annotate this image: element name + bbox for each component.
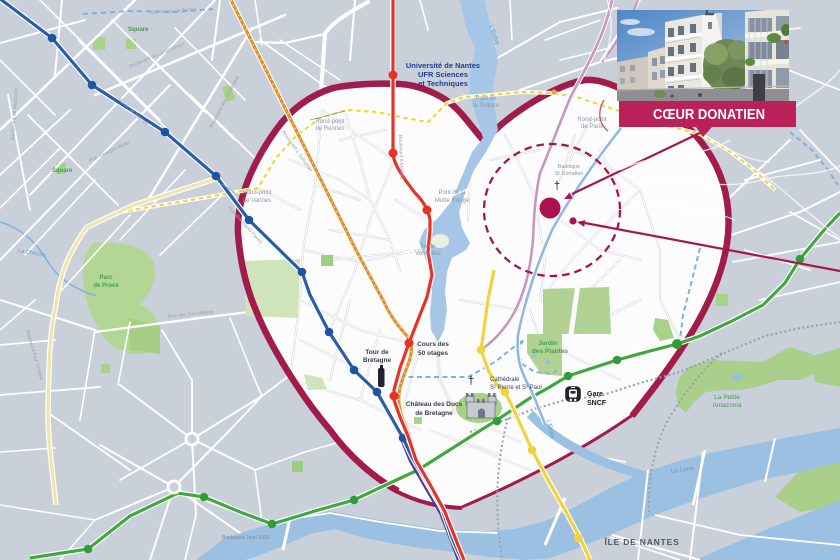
svg-text:St Donatien: St Donatien [555,171,584,177]
svg-text:de Bretagne: de Bretagne [415,410,453,417]
svg-text:ÎLE DE NANTES: ÎLE DE NANTES [603,536,679,547]
svg-text:S¹ Pierre et S¹ Paul: S¹ Pierre et S¹ Paul [490,385,542,391]
svg-text:de Rennes: de Rennes [315,126,344,132]
svg-text:Basilique: Basilique [558,164,580,170]
svg-text:50 otages: 50 otages [418,350,448,357]
svg-text:Motte Rouge: Motte Rouge [435,198,470,204]
svg-text:Pont de la: Pont de la [438,190,466,196]
svg-text:Rond-point: Rond-point [577,117,607,123]
svg-text:Rond-point: Rond-point [315,119,345,125]
svg-text:†: † [468,375,474,387]
svg-text:CŒUR DONATIEN: CŒUR DONATIEN [653,107,765,123]
svg-text:La Petite: La Petite [714,394,740,401]
svg-text:Square: Square [52,168,73,174]
svg-text:de Paris: de Paris [581,124,603,130]
svg-text:Boulevard Jean XXIII: Boulevard Jean XXIII [222,535,269,541]
svg-text:Cours des: Cours des [417,341,449,348]
svg-text:Versailles: Versailles [415,251,441,257]
svg-text:la Tortière: la Tortière [473,103,500,109]
svg-text:Pont de: Pont de [476,96,497,102]
svg-text:Gare: Gare [587,391,603,398]
svg-text:Amazonia: Amazonia [713,402,742,409]
svg-text:Château des Ducs: Château des Ducs [406,401,463,408]
svg-text:Parc: Parc [99,275,113,281]
svg-text:Université de Nantes: Université de Nantes [406,61,480,70]
svg-text:Rond-point: Rond-point [242,190,272,196]
svg-text:des Plantes: des Plantes [532,348,569,355]
svg-text:†: † [554,180,560,192]
svg-text:de Vannes: de Vannes [243,198,271,204]
svg-text:Jardin: Jardin [538,340,558,347]
svg-text:UFR Sciences: UFR Sciences [418,70,468,79]
svg-text:Square: Square [128,27,149,33]
svg-text:Bretagne: Bretagne [363,357,392,364]
svg-text:Île de: Île de [420,243,436,250]
svg-text:SNCF: SNCF [587,400,607,407]
svg-text:Tour de: Tour de [365,349,389,356]
svg-text:et Techniques: et Techniques [418,79,468,88]
svg-text:de Procé: de Procé [93,283,119,289]
svg-text:Cathédrale: Cathédrale [490,377,520,383]
